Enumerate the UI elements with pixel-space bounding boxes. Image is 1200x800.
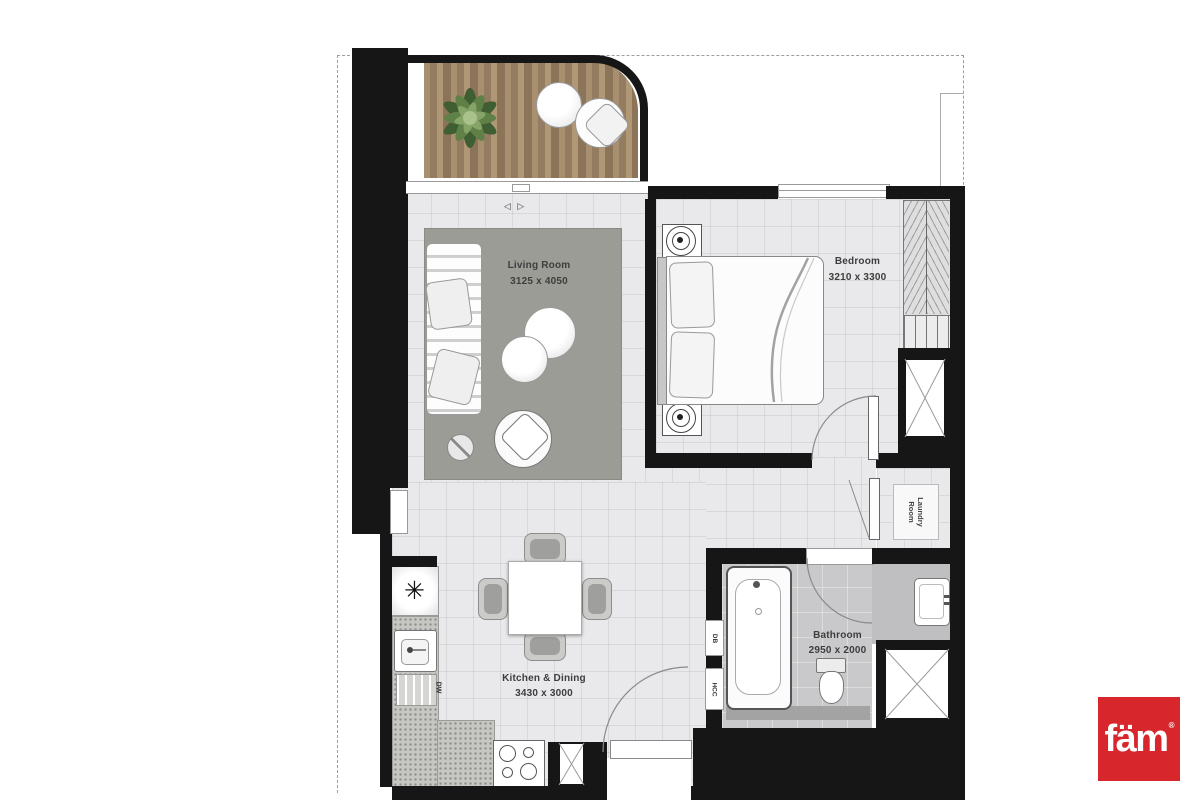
sliding-door — [406, 181, 648, 194]
lamp-icon — [677, 237, 683, 243]
laundry-door-swing — [840, 470, 880, 545]
wall-segment — [548, 742, 558, 788]
stove — [493, 740, 545, 788]
wall-segment — [706, 548, 808, 564]
wardrobe-rail — [926, 201, 927, 314]
wall-segment — [886, 186, 965, 199]
burner-icon — [523, 747, 534, 758]
bed-pillow — [669, 331, 715, 398]
dining-chair — [524, 631, 566, 661]
utility-box: ✳ — [390, 566, 439, 616]
window-pane-line — [779, 190, 887, 191]
side-table — [447, 434, 474, 461]
shaft-x-icon — [884, 648, 950, 720]
lamp-icon — [677, 414, 683, 420]
bed-pillow — [669, 261, 715, 328]
burner-icon — [520, 763, 537, 780]
kitchen-dining-dims: 3430 x 3000 — [482, 687, 606, 700]
setback-notch-line — [940, 93, 964, 187]
boundary-line-left — [337, 55, 338, 793]
hcc-panel: HCC — [705, 668, 724, 710]
sofa-pillow — [425, 277, 473, 330]
wall-segment — [352, 488, 390, 534]
wall-segment — [380, 534, 392, 787]
dining-chair — [478, 578, 508, 620]
burner-icon — [502, 767, 513, 778]
bedroom-dims: 3210 x 3300 — [800, 271, 915, 284]
bedroom-window — [778, 184, 890, 198]
structural-column-icon — [558, 742, 585, 786]
drain-board — [396, 674, 437, 706]
shaft-x-icon — [904, 358, 946, 438]
wall-living-bedroom — [645, 199, 656, 461]
faucet-icon — [753, 581, 760, 588]
bathroom-dims: 2950 x 2000 — [780, 644, 895, 657]
wall-segment — [352, 48, 408, 488]
bathtub-inner — [735, 579, 781, 695]
entrance-door-arc — [590, 655, 700, 765]
bedroom-door-arc — [805, 390, 885, 470]
bathroom-door-arc — [800, 550, 880, 630]
dining-chair — [582, 578, 612, 620]
utility-symbol-icon: ✳ — [404, 576, 425, 606]
fam-logo-text: fäm — [1105, 720, 1168, 758]
living-room-dims: 3125 x 4050 — [478, 275, 600, 288]
wall-segment — [648, 186, 778, 199]
sliding-door-handle — [512, 184, 530, 192]
dishwasher-label: DW — [434, 682, 441, 694]
kitchen-counter-bottom — [437, 720, 495, 788]
balcony-wall — [408, 55, 648, 186]
hcc-panel-label: HCC — [711, 682, 718, 696]
coffee-table-small — [501, 336, 548, 383]
db-panel: DB — [705, 620, 724, 656]
registered-mark: ® — [1169, 721, 1175, 730]
vanity-sink-bowl — [919, 584, 944, 619]
wall-segment — [388, 556, 437, 567]
kitchen-dining-label: Kitchen & Dining — [482, 672, 606, 685]
fam-logo: fäm® — [1098, 697, 1180, 781]
laundry-room-label: Laundry Room — [907, 497, 925, 527]
kitchen-sink — [394, 630, 437, 672]
dining-table — [508, 561, 582, 635]
toilet-bowl — [819, 671, 844, 704]
sliding-door-symbol: ◁ ▷ — [470, 200, 560, 213]
wardrobe-clothes-right — [927, 201, 949, 314]
floor-plan-canvas: ✳ — [0, 0, 1200, 800]
laundry-room-box: Laundry Room — [893, 484, 939, 540]
bathroom-label: Bathroom — [780, 629, 895, 642]
db-panel-label: DB — [711, 633, 718, 642]
wall-segment — [872, 548, 965, 564]
wall-segment — [645, 453, 812, 468]
living-room-label: Living Room — [478, 259, 600, 272]
burner-icon — [499, 745, 516, 762]
bedroom-label: Bedroom — [800, 255, 915, 268]
window — [390, 490, 408, 534]
wardrobe-drawers — [903, 315, 952, 352]
drain-icon — [755, 608, 762, 615]
wall-bottom-mass — [693, 728, 965, 788]
faucet-spout — [413, 649, 426, 651]
sink-bowl — [401, 639, 429, 665]
